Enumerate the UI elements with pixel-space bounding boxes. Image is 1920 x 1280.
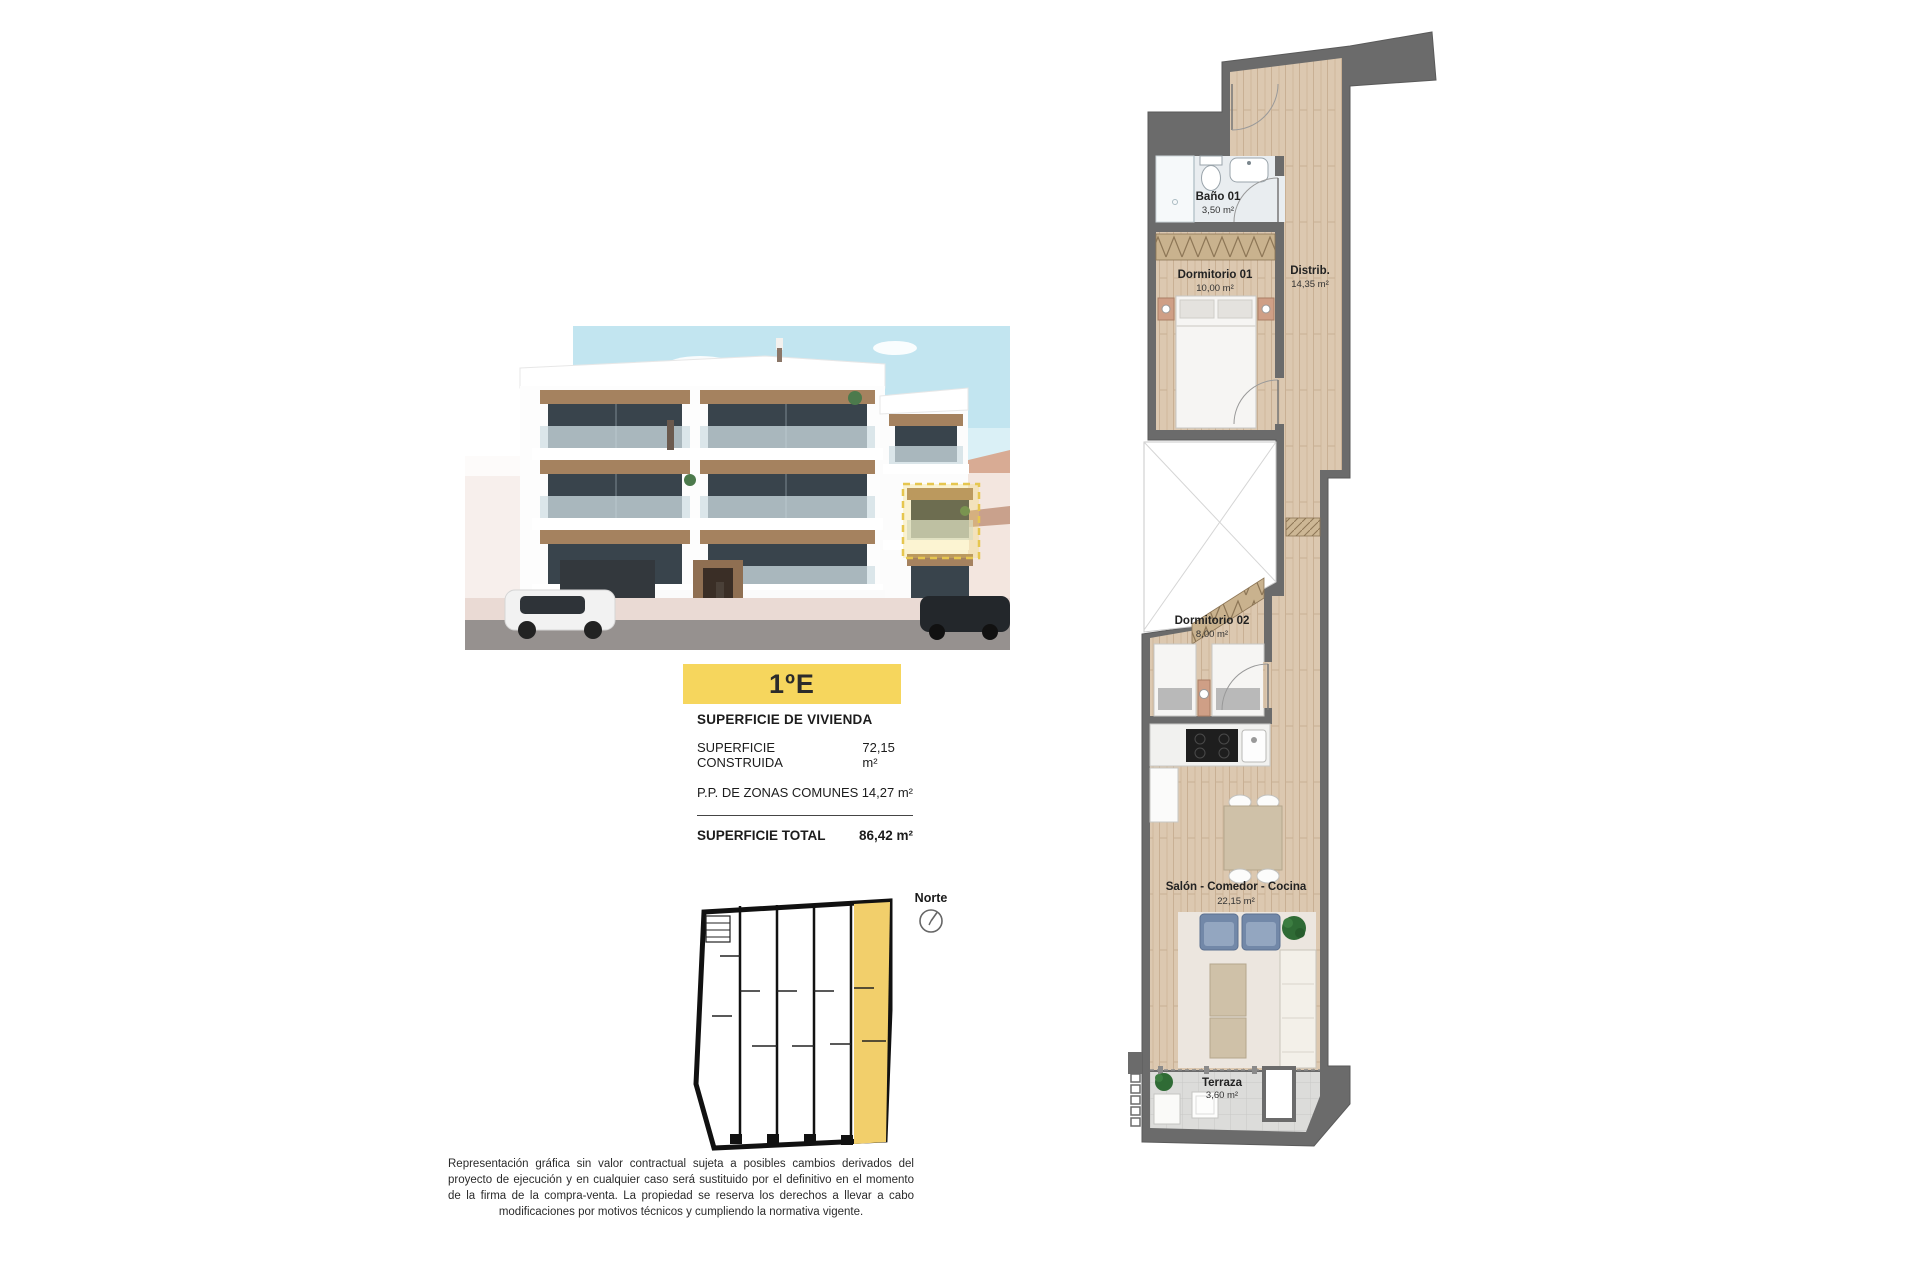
coffee-table (1210, 964, 1246, 1016)
plant-icon (1282, 916, 1306, 940)
corridor-shaft (1286, 518, 1320, 536)
terrace-chair (1154, 1094, 1180, 1124)
key-plan (692, 896, 924, 1154)
armchair (1242, 914, 1280, 950)
north-label: Norte (905, 891, 957, 905)
room-area-salon: 22,15 m² (1217, 896, 1255, 907)
surface-row-label: P.P. DE ZONAS COMUNES (697, 785, 858, 800)
room-area-dorm1: 10,00 m² (1196, 283, 1234, 294)
cooktop-icon (1186, 729, 1238, 762)
double-bed (1176, 296, 1256, 428)
room-label-dorm1: Dormitorio 01 (1178, 269, 1253, 281)
brochure-page: 1ºE SUPERFICIE DE VIVIENDA SUPERFICIE CO… (0, 0, 1920, 1280)
room-label-bano: Baño 01 (1196, 191, 1241, 203)
room-label-salon: Salón - Comedor - Cocina (1166, 881, 1307, 893)
single-bed (1212, 644, 1264, 716)
surface-row-value: 72,15 m² (862, 740, 913, 770)
armchair (1200, 914, 1238, 950)
floor-plan: Baño 01 3,50 m² Dormitorio 01 10,00 m² D… (1118, 26, 1448, 1151)
surface-table: SUPERFICIE DE VIVIENDA SUPERFICIE CONSTR… (697, 712, 913, 843)
wardrobe (1156, 234, 1275, 260)
room-area-terraza: 3,60 m² (1206, 1090, 1238, 1101)
toilet-tank (1200, 156, 1222, 165)
surface-total-label: SUPERFICIE TOTAL (697, 828, 826, 843)
unit-label: 1ºE (683, 664, 901, 704)
room-label-terraza: Terraza (1202, 1077, 1243, 1089)
surface-row-label: SUPERFICIE CONSTRUIDA (697, 740, 862, 770)
room-area-bano: 3,50 m² (1202, 205, 1234, 216)
room-area-distrib: 14,35 m² (1291, 279, 1329, 290)
room-area-dorm2: 8,00 m² (1196, 629, 1228, 640)
surface-row-value: 14,27 m² (862, 785, 913, 800)
surface-row-comunes: P.P. DE ZONAS COMUNES 14,27 m² (697, 785, 913, 800)
surface-total-value: 86,42 m² (859, 828, 913, 843)
single-bed (1154, 644, 1196, 716)
surface-row-construida: SUPERFICIE CONSTRUIDA 72,15 m² (697, 740, 913, 770)
plant-icon (1155, 1073, 1173, 1091)
terrace-storage (1264, 1068, 1294, 1120)
dining-set (1224, 795, 1282, 883)
coffee-table (1210, 1018, 1246, 1058)
compass-icon (917, 907, 945, 935)
surface-row-total: SUPERFICIE TOTAL 86,42 m² (697, 828, 913, 843)
fridge (1150, 768, 1178, 822)
bedroom-1 (1156, 232, 1285, 430)
key-plan-highlighted-unit (854, 902, 890, 1144)
dining-table (1224, 806, 1282, 870)
toilet-icon (1202, 166, 1221, 191)
surface-table-title: SUPERFICIE DE VIVIENDA (697, 712, 913, 727)
shower (1156, 156, 1194, 222)
living-room (1178, 912, 1316, 1068)
disclaimer-text: Representación gráfica sin valor contrac… (448, 1156, 914, 1220)
drain-grate (1131, 1074, 1140, 1126)
unit-highlight-box (903, 484, 979, 558)
room-label-distrib: Distrib. (1290, 265, 1330, 277)
building-rendering (465, 268, 1010, 650)
surface-divider (697, 815, 913, 816)
kitchen-sink-icon (1242, 730, 1266, 762)
room-label-dorm2: Dormitorio 02 (1175, 615, 1250, 627)
sofa (1280, 950, 1316, 1068)
north-indicator: Norte (905, 891, 957, 940)
